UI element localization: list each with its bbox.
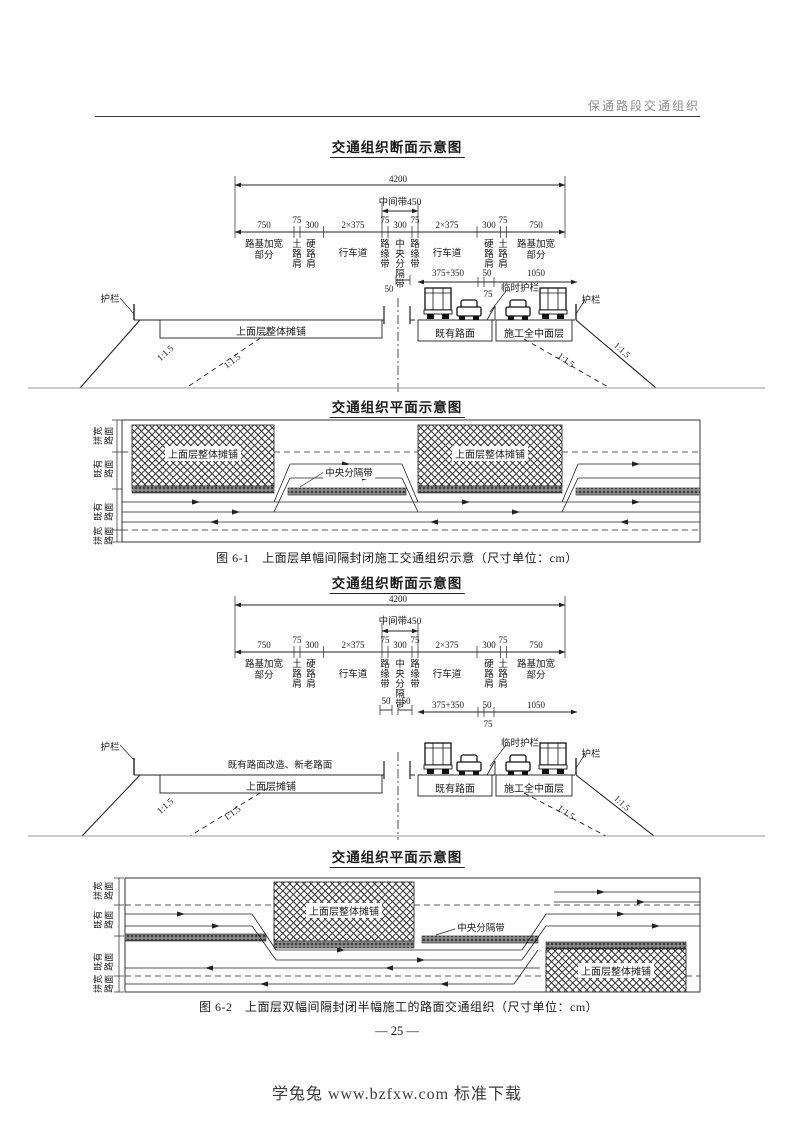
fig1-dim-3: 2×375	[341, 220, 364, 230]
fig2-dim-5: 300	[393, 640, 407, 650]
fig2-caption: 图 6-2 上面层双幅间隔封闭半幅施工的路面交通组织（尺寸单位：cm）	[199, 998, 595, 1015]
fig1-seg-label-5: 中央分隔带	[395, 240, 406, 290]
fig1-dim-total: 4200	[389, 174, 407, 184]
fig2-sub-gap50-right: 50	[483, 700, 492, 710]
fig2-seg-label-3: 行车道	[339, 666, 368, 680]
fig1-cross-section-title: 交通组织断面示意图	[330, 136, 465, 158]
fig2-dim-1: 75	[293, 635, 302, 645]
fig1-plan-side-2: 既有 路面	[93, 499, 115, 525]
fig2-plan-title: 交通组织平面示意图	[330, 846, 465, 868]
fig2-sub-gap50-left: 50	[402, 696, 411, 706]
fig1-guardrail-right-label: 护栏	[581, 292, 600, 306]
fig2-dim-6: 75	[411, 635, 420, 645]
fig1-dim-9: 75	[499, 215, 508, 225]
fig1-caption: 图 6-1 上面层单幅间隔封闭施工交通组织示意（尺寸单位：cm）	[216, 549, 578, 566]
fig2-dim-total: 4200	[389, 594, 407, 604]
fig2-existing-rebuild-note: 既有路面改造、新老路面	[228, 757, 333, 771]
fig1-existing-box-label: 既有路面	[435, 325, 475, 340]
fig2-sub-gap50-leftmost: 50	[382, 696, 391, 706]
fig2-plan-median-label: 中央分隔带	[455, 920, 507, 934]
fig1-seg-label-2: 硬路肩	[306, 240, 317, 270]
fig2-dim-median-band: 中间带450	[379, 613, 422, 627]
fig1-dim-8: 300	[482, 220, 496, 230]
fig1-dim-2: 300	[305, 220, 319, 230]
fig1-guardrail-left-label: 护栏	[100, 291, 119, 305]
fig2-seg-label-4: 路缘带	[380, 660, 391, 690]
fig1-dim-10: 750	[529, 220, 543, 230]
fig2-seg-label-10: 路基加宽 部分	[504, 660, 568, 682]
fig2-sub-lane: 375+350	[432, 700, 464, 710]
fig1-seg-label-0: 路基加宽 部分	[232, 240, 296, 262]
header-rule	[95, 116, 700, 117]
fig2-dim-10: 750	[529, 640, 543, 650]
fig1-sub-gap50-right: 50	[483, 268, 492, 278]
watermark-footer: 学兔兔 www.bzfxw.com 标准下载	[272, 1080, 522, 1104]
fig1-sub-gap75: 75	[484, 289, 493, 299]
fig1-dim-0: 750	[257, 220, 271, 230]
fig1-dim-5: 300	[393, 220, 407, 230]
fig2-dim-3: 2×375	[341, 640, 364, 650]
fig1-seg-label-3: 行车道	[339, 245, 368, 259]
fig1-paving-box-label: 上面层整体摊铺	[236, 323, 306, 338]
fig2-guardrail-left-label: 护栏	[100, 739, 119, 753]
fig1-dim-median-band: 中间带450	[379, 194, 422, 208]
fig2-seg-label-6: 路缘带	[410, 660, 421, 690]
fig2-plan-side-0: 拼宽 路面	[93, 878, 115, 904]
fig2-seg-label-7: 行车道	[433, 666, 462, 680]
fig1-plan-block1-label: 上面层整体摊铺	[165, 446, 241, 461]
fig1-seg-label-1: 土路肩	[292, 240, 303, 270]
fig1-plan-side-1: 既有 路面	[93, 456, 115, 482]
fig2-sub-gap75: 75	[484, 719, 493, 729]
fig1-plan-title: 交通组织平面示意图	[330, 396, 465, 418]
fig2-seg-label-0: 路基加宽 部分	[232, 660, 296, 682]
fig1-plan-view-drawing	[112, 420, 700, 542]
fig2-cross-section-title: 交通组织断面示意图	[330, 572, 465, 594]
fig1-dim-7: 2×375	[435, 220, 458, 230]
running-header: 保通路段交通组织	[588, 97, 700, 114]
fig2-dim-0: 750	[257, 640, 271, 650]
fig2-seg-label-2: 硬路肩	[306, 660, 317, 690]
fig1-seg-label-4: 路缘带	[380, 240, 391, 270]
fig2-seg-label-1: 土路肩	[292, 660, 303, 690]
fig1-sub-gap50-left: 50	[385, 284, 394, 294]
fig1-dim-1: 75	[293, 215, 302, 225]
fig2-construction-box-label: 施工全中面层	[504, 780, 564, 795]
fig1-dim-6: 75	[411, 215, 420, 225]
fig1-plan-block2-label: 上面层整体摊铺	[452, 446, 528, 461]
fig2-existing-box-label: 既有路面	[435, 780, 475, 795]
fig1-temp-guardrail-label: 临时护栏	[501, 280, 539, 294]
fig1-dim-4: 75	[381, 215, 390, 225]
fig2-guardrail-right-label: 护栏	[581, 746, 600, 760]
fig2-sub-widen: 1050	[527, 700, 545, 710]
fig2-paving-box-label: 上面层摊铺	[246, 778, 296, 793]
fig2-dim-8: 300	[482, 640, 496, 650]
document-page: 保通路段交通组织 交通组织断面示意图 交通组织平面示意图 4200 中间带450…	[0, 0, 793, 1122]
fig1-seg-label-8: 硬路肩	[484, 240, 495, 270]
fig2-plan-block2-label: 上面层整体摊铺	[578, 963, 654, 978]
fig1-construction-box-label: 施工全中面层	[504, 325, 564, 340]
fig2-plan-side-1: 既有 路面	[93, 907, 115, 933]
fig1-plan-side-0: 拼宽 路面	[93, 423, 115, 449]
fig1-plan-side-3: 拼宽 路面	[93, 523, 115, 549]
fig1-seg-label-7: 行车道	[433, 245, 462, 259]
fig2-seg-label-8: 硬路肩	[484, 660, 495, 690]
fig2-plan-block1-label: 上面层整体摊铺	[306, 903, 382, 918]
fig2-cross-section-drawing	[28, 596, 765, 840]
fig2-dim-4: 75	[381, 635, 390, 645]
fig1-seg-label-10: 路基加宽 部分	[504, 240, 568, 262]
page-number: — 25 —	[375, 1024, 419, 1039]
fig2-plan-side-3: 拼宽 路面	[93, 971, 115, 997]
fig2-dim-9: 75	[499, 635, 508, 645]
fig1-sub-widen: 1050	[527, 268, 545, 278]
fig1-seg-label-6: 路缘带	[410, 240, 421, 270]
fig2-dim-7: 2×375	[435, 640, 458, 650]
fig2-temp-guardrail-label: 临时护栏	[501, 735, 539, 749]
fig1-plan-median-label: 中央分隔带	[323, 465, 375, 479]
fig2-dim-2: 300	[305, 640, 319, 650]
fig1-sub-lane: 375+350	[432, 268, 464, 278]
